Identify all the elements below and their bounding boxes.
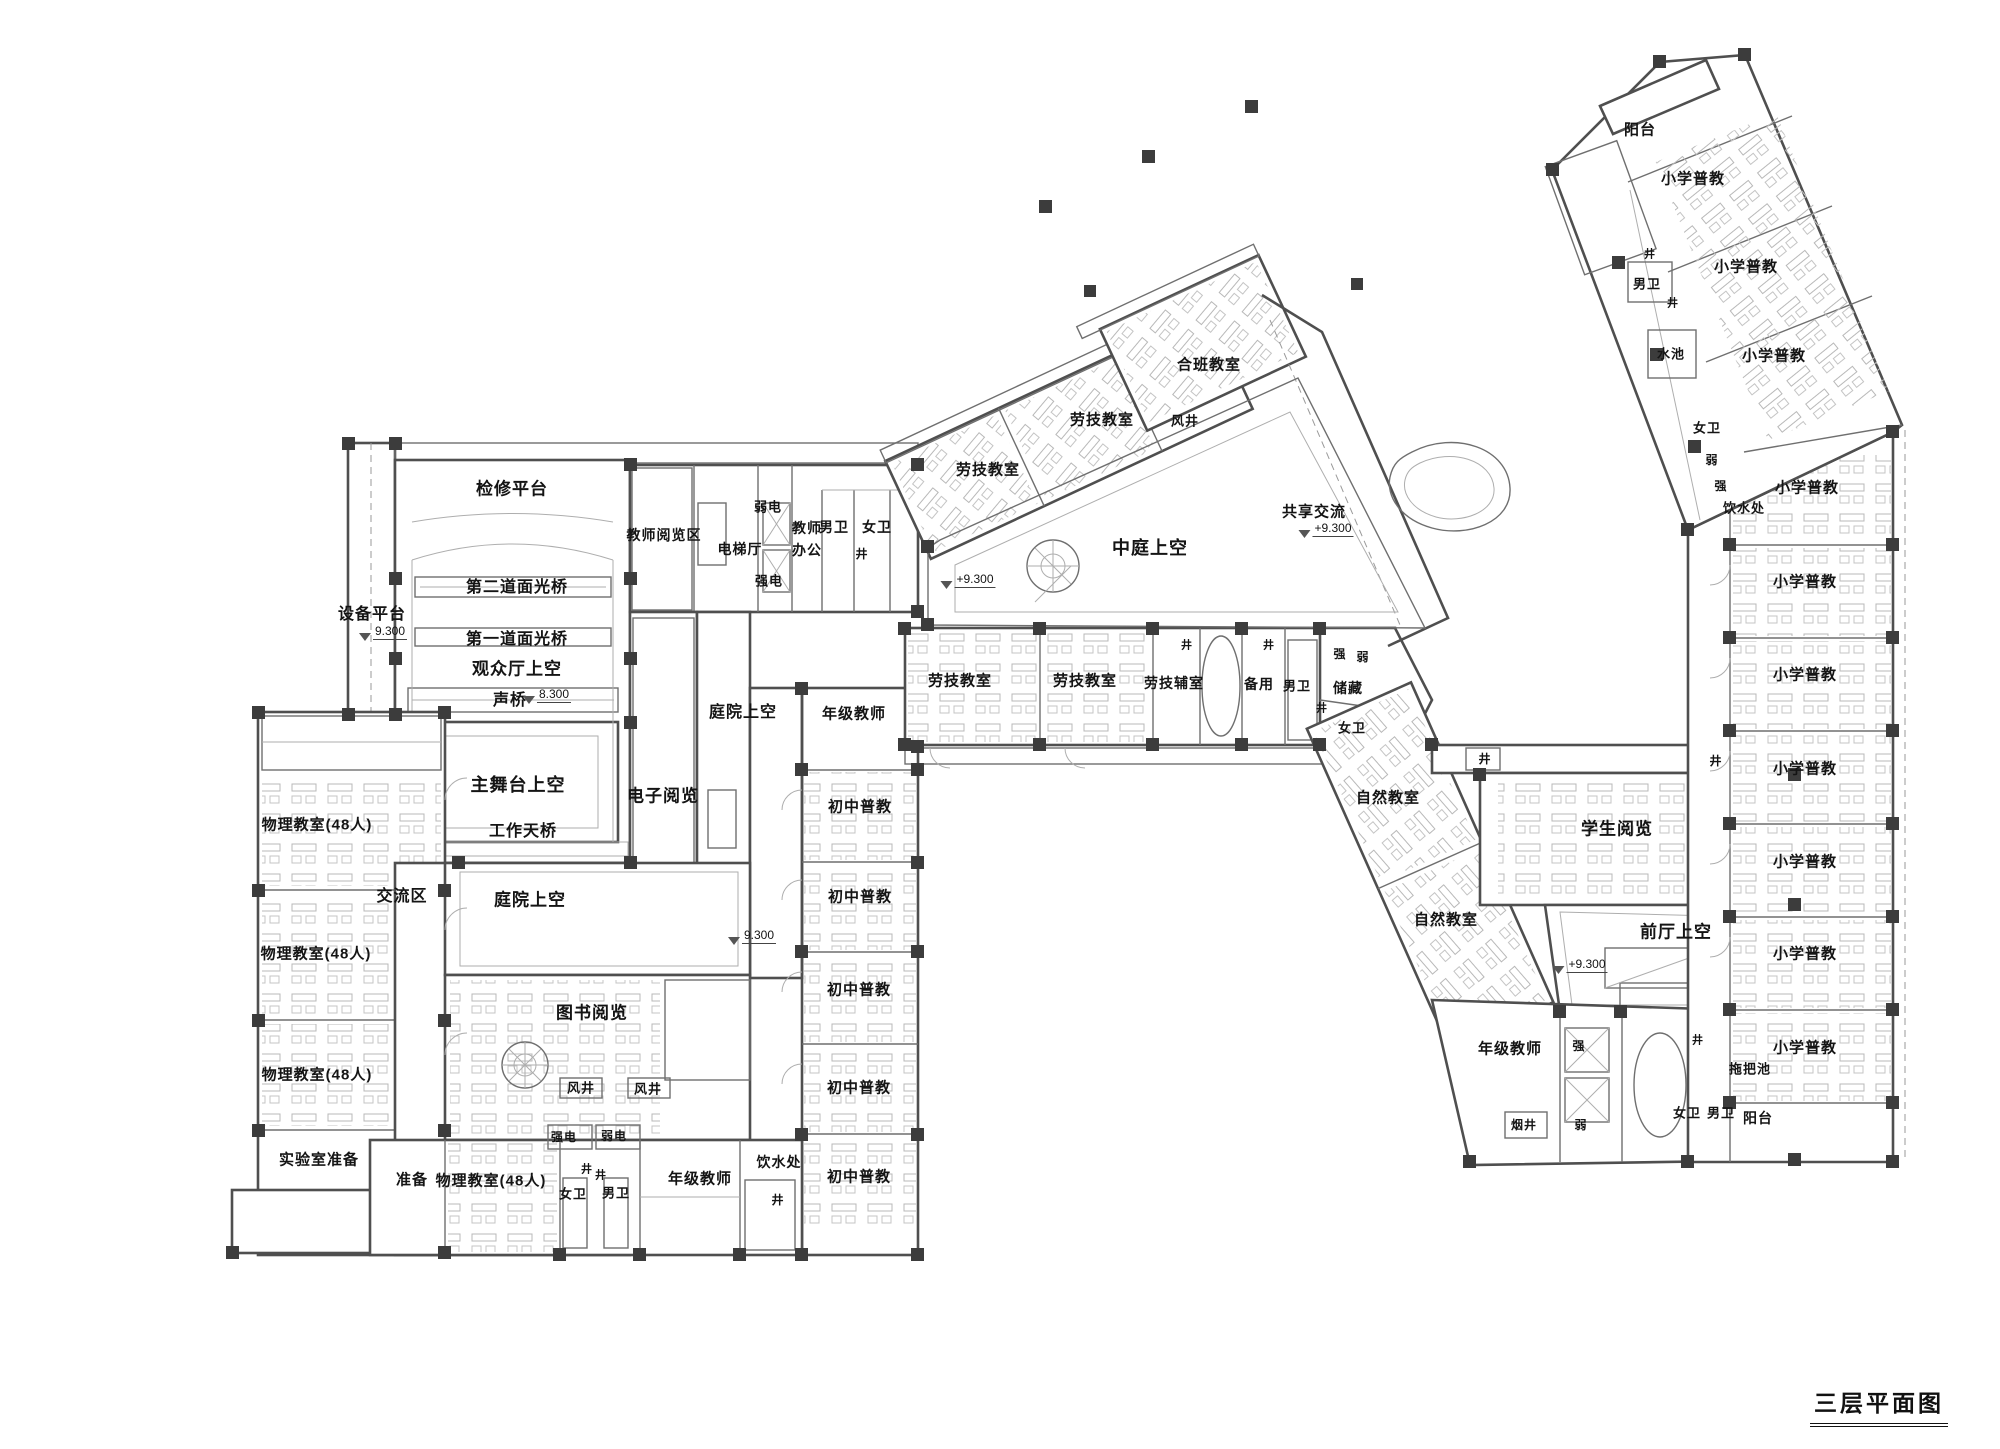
room-label: 交流区 <box>376 889 427 905</box>
room-label: 井 <box>1692 1036 1704 1047</box>
room-label: 共享交流 <box>1282 505 1346 520</box>
room-label: 物理教室(48人) <box>261 947 372 962</box>
room-label: 井 <box>581 1165 593 1176</box>
room-label: 备用 <box>1244 677 1274 691</box>
elevation-triangle-icon <box>940 581 952 589</box>
elevation-mark: 9.300 <box>728 929 776 945</box>
room-label: 初中普教 <box>827 983 891 998</box>
room-label: 井 <box>1478 753 1491 765</box>
room-label: 劳技教室 <box>956 463 1020 478</box>
room-label: 强电 <box>551 1131 577 1143</box>
room-label: 自然教室 <box>1356 791 1420 806</box>
room-label: 女卫 <box>1693 422 1721 435</box>
room-label: 弱 <box>1356 651 1369 663</box>
room-label: 男卫 <box>1283 680 1311 693</box>
room-label: 饮水处 <box>757 1155 802 1169</box>
room-label: 劳技教室 <box>928 674 992 689</box>
room-label: 女卫 <box>862 520 892 534</box>
room-label: 风井 <box>634 1083 662 1096</box>
room-label: 强 <box>1333 648 1346 660</box>
room-label: 男卫 <box>1707 1107 1735 1120</box>
room-label: 弱 <box>1574 1119 1587 1131</box>
room-label: 井 <box>1316 704 1328 715</box>
room-label: 检修平台 <box>476 481 548 498</box>
room-label: 井 <box>855 548 868 560</box>
elevation-triangle-icon <box>523 696 535 704</box>
room-label: 前厅上空 <box>1640 924 1712 941</box>
room-label: 自然教室 <box>1414 913 1478 928</box>
room-label: 图书阅览 <box>556 1005 628 1022</box>
room-label: 年级教师 <box>1478 1042 1542 1057</box>
room-label: 小学普教 <box>1742 349 1806 364</box>
room-label: 储藏 <box>1333 681 1363 695</box>
room-label: 实验室准备 <box>279 1153 359 1168</box>
room-label: 强 <box>1572 1040 1585 1052</box>
room-label: 井 <box>1644 250 1656 261</box>
room-label: 风井 <box>1171 415 1199 428</box>
room-label: 井 <box>595 1171 607 1182</box>
floor-plan-canvas: 检修平台设备平台9.300第二道面光桥第一道面光桥观众厅上空声桥8.300主舞台… <box>0 0 2000 1449</box>
room-label: 井 <box>1263 641 1275 652</box>
room-label: 工作天桥 <box>489 824 557 840</box>
room-label: 弱 <box>1705 454 1718 466</box>
room-label: 女卫 <box>559 1188 587 1201</box>
room-label: 中庭上空 <box>1112 539 1188 557</box>
room-label: 小学普教 <box>1773 668 1837 683</box>
room-label: 阳台 <box>1624 123 1656 138</box>
room-label: 初中普教 <box>827 1081 891 1096</box>
room-label: 强 <box>1714 480 1727 492</box>
room-label: 小学普教 <box>1773 947 1837 962</box>
room-label: 第一道面光桥 <box>466 632 568 648</box>
plan-linework <box>0 0 2000 1449</box>
room-label: 饮水处 <box>1723 502 1765 515</box>
room-label: 弱电 <box>754 501 782 514</box>
room-label: 小学普教 <box>1773 855 1837 870</box>
room-label: 年级教师 <box>668 1172 732 1187</box>
room-label: 物理教室(48人) <box>436 1174 547 1189</box>
room-label: 电子阅览 <box>627 788 699 805</box>
room-label: 小学普教 <box>1775 481 1839 496</box>
room-label: 水池 <box>1657 348 1685 361</box>
room-label: 烟井 <box>1511 1119 1537 1131</box>
room-label: 物理教室(48人) <box>262 1068 373 1083</box>
room-label: 小学普教 <box>1714 260 1778 275</box>
room-label: 初中普教 <box>827 1170 891 1185</box>
room-label: 设备平台 <box>338 607 406 623</box>
elevation-triangle-icon <box>359 633 371 641</box>
room-label: 初中普教 <box>828 800 892 815</box>
room-label: 井 <box>1181 641 1193 652</box>
room-label: 观众厅上空 <box>472 661 562 678</box>
room-label: 阳台 <box>1743 1111 1773 1125</box>
room-label: 小学普教 <box>1661 172 1725 187</box>
room-label: 男卫 <box>819 520 849 534</box>
elevation-mark: +9.300 <box>1552 958 1607 974</box>
room-label: 小学普教 <box>1773 762 1837 777</box>
room-label: 拖把池 <box>1729 1063 1771 1076</box>
elevation-mark: 8.300 <box>523 688 571 704</box>
room-label: 小学普教 <box>1773 1041 1837 1056</box>
room-label: 强电 <box>755 575 783 588</box>
room-label: 声桥 <box>493 693 527 709</box>
elevation-mark: +9.300 <box>1298 522 1353 538</box>
room-label: 男卫 <box>1633 278 1661 291</box>
elevation-triangle-icon <box>1552 966 1564 974</box>
room-label: 电梯厅 <box>718 542 763 556</box>
room-label: 井 <box>771 1194 784 1206</box>
room-label: 年级教师 <box>822 707 886 722</box>
room-label: 女卫 <box>1338 722 1366 735</box>
room-label: 弱电 <box>601 1130 627 1142</box>
drawing-title: 三层平面图 <box>1810 1384 1948 1427</box>
room-label: 劳技教室 <box>1070 413 1134 428</box>
room-label: 学生阅览 <box>1581 821 1653 838</box>
room-label: 风井 <box>567 1082 595 1095</box>
room-label: 劳技教室 <box>1053 674 1117 689</box>
room-label: 合班教室 <box>1177 358 1241 373</box>
elevation-triangle-icon <box>728 937 740 945</box>
room-label: 井 <box>1709 755 1722 767</box>
room-label: 井 <box>1667 299 1679 310</box>
room-label: 庭院上空 <box>709 705 777 721</box>
elevation-mark: 9.300 <box>359 625 407 641</box>
room-label: 初中普教 <box>828 890 892 905</box>
room-label: 教师 <box>792 521 822 535</box>
room-label: 庭院上空 <box>494 892 566 909</box>
room-label: 主舞台上空 <box>471 776 566 794</box>
room-label: 准备 <box>396 1173 428 1188</box>
room-label: 小学普教 <box>1773 575 1837 590</box>
room-label: 第二道面光桥 <box>466 580 568 596</box>
room-label: 教师阅览区 <box>627 528 702 542</box>
room-label: 女卫 <box>1673 1107 1701 1120</box>
room-label: 物理教室(48人) <box>262 818 373 833</box>
elevation-triangle-icon <box>1298 530 1310 538</box>
elevation-mark: +9.300 <box>940 573 995 589</box>
room-label: 办公 <box>792 543 822 557</box>
room-label: 男卫 <box>602 1187 630 1200</box>
room-label: 劳技辅室 <box>1144 676 1204 690</box>
